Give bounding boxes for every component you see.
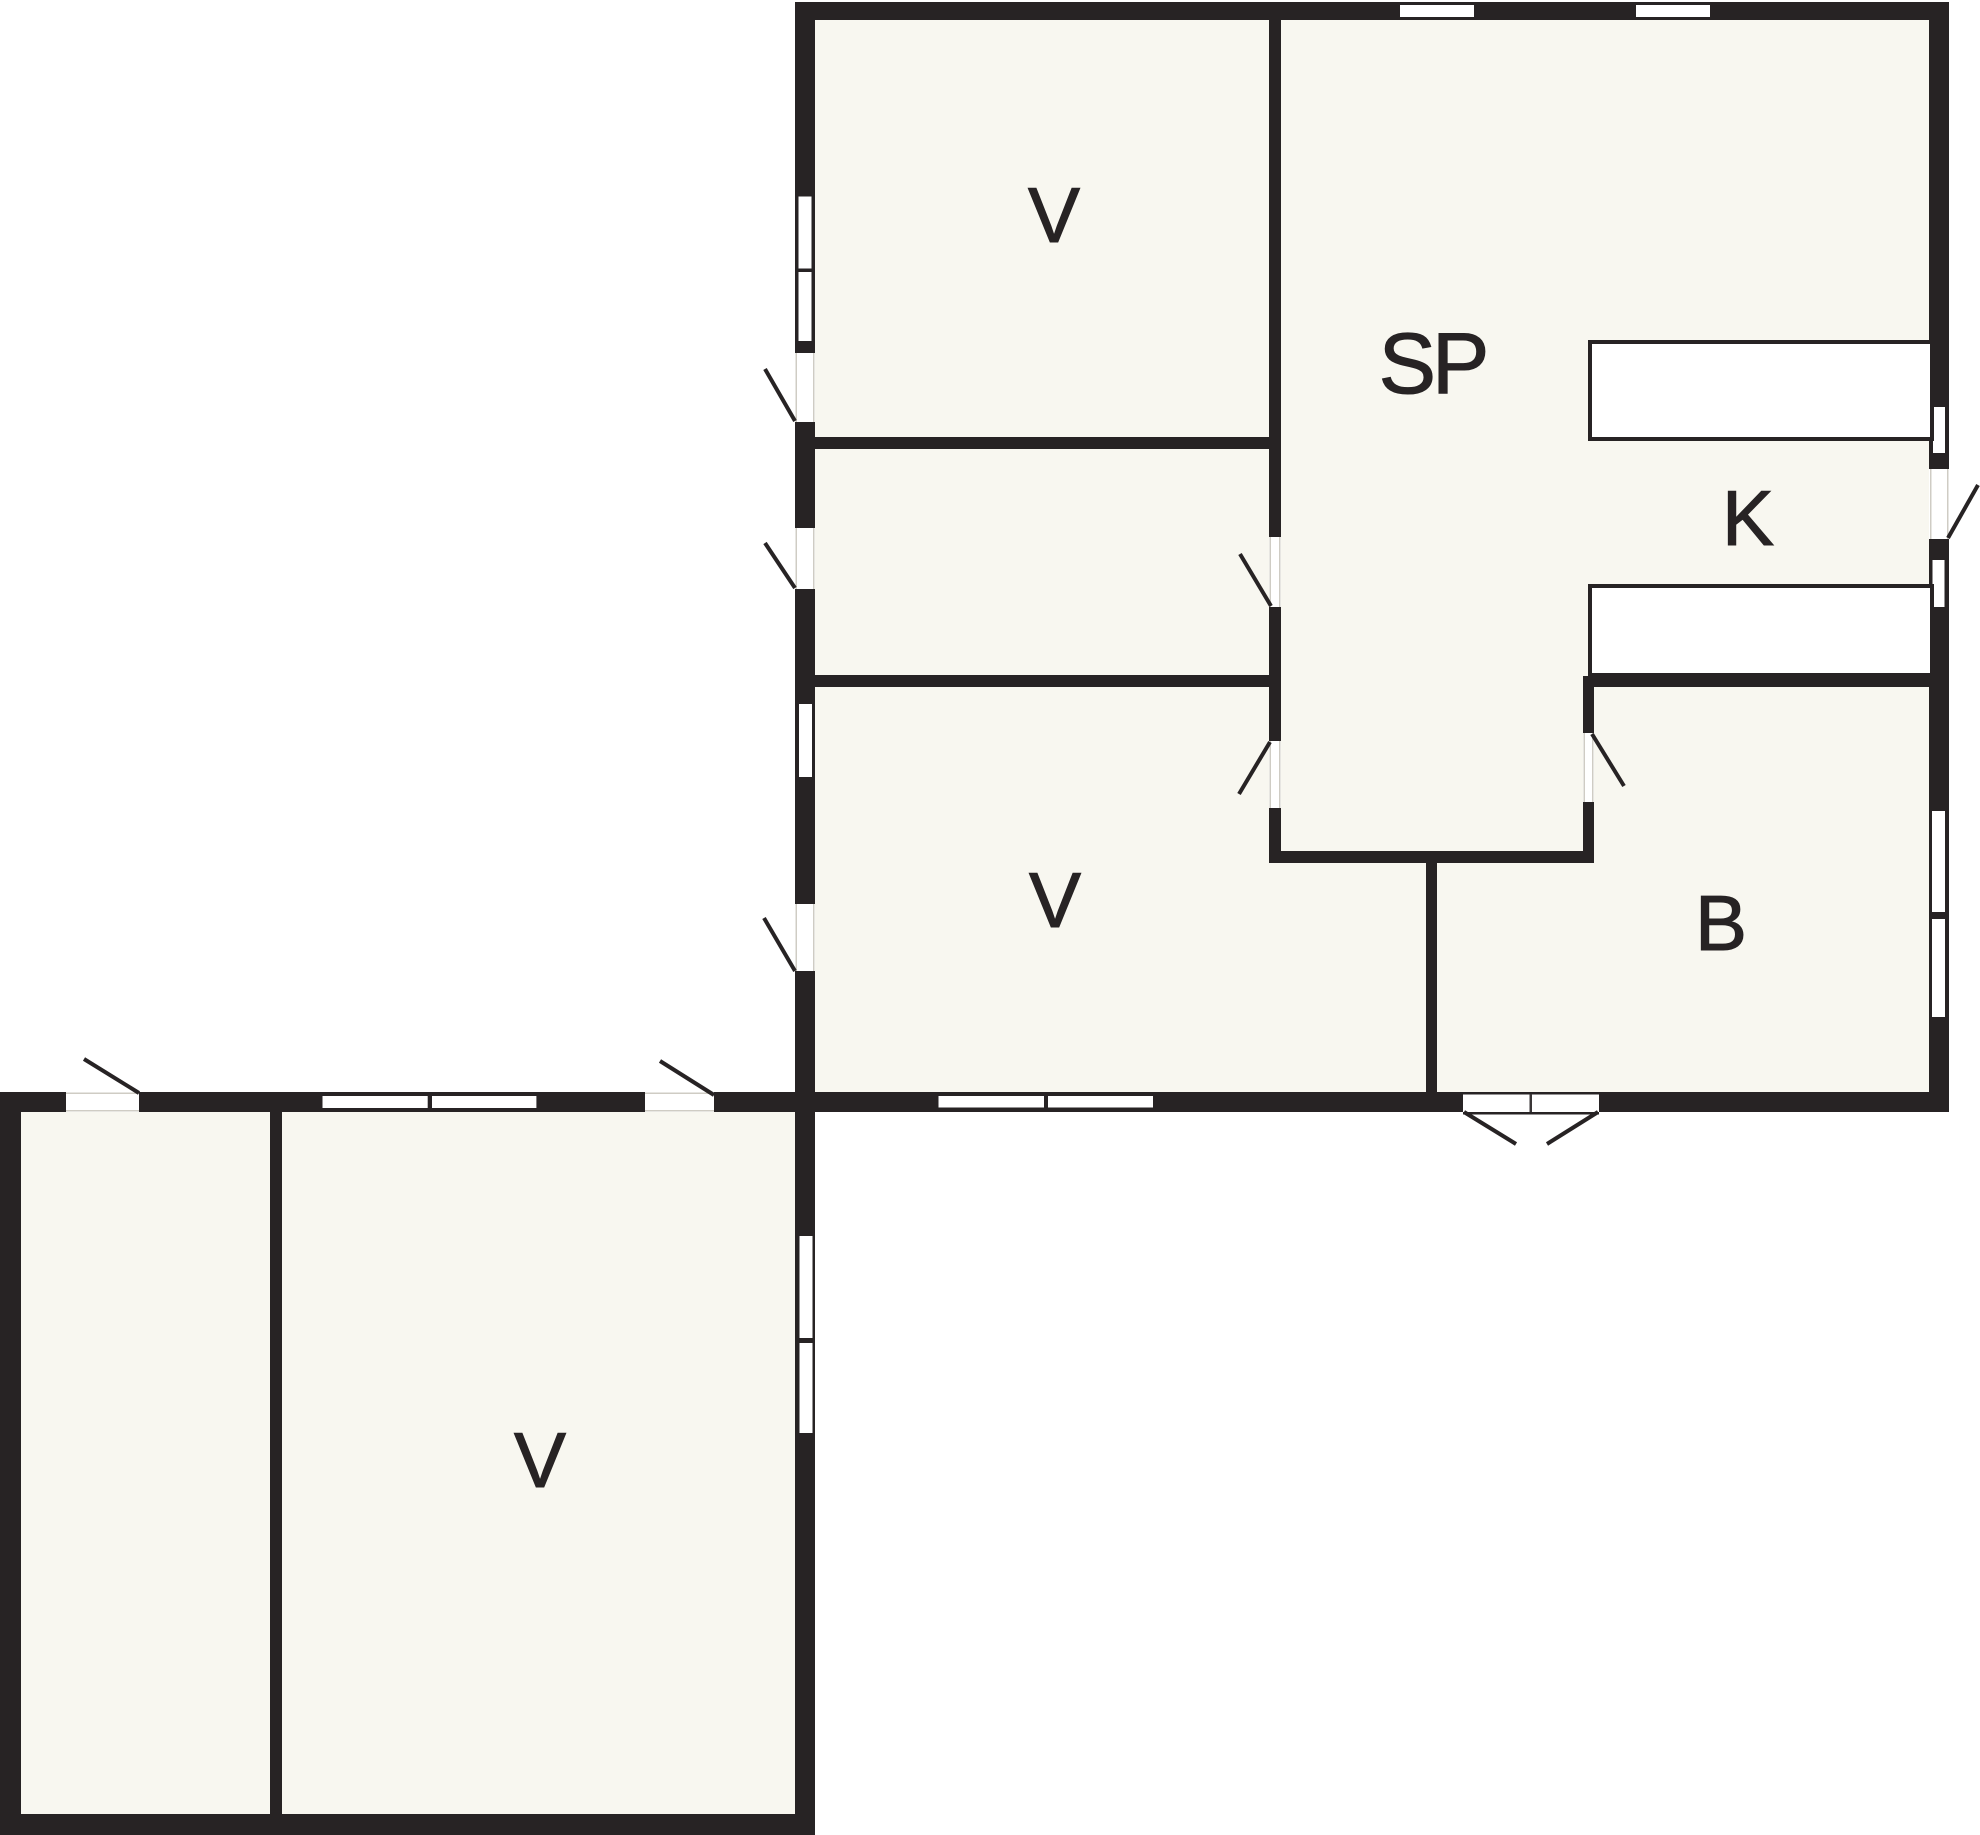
svg-text:K: K (1722, 474, 1774, 562)
svg-text:V: V (1028, 171, 1080, 259)
svg-text:SP: SP (1379, 316, 1486, 412)
svg-text:B: B (1695, 879, 1747, 967)
svg-text:V: V (514, 1416, 566, 1504)
svg-text:V: V (1029, 856, 1081, 944)
